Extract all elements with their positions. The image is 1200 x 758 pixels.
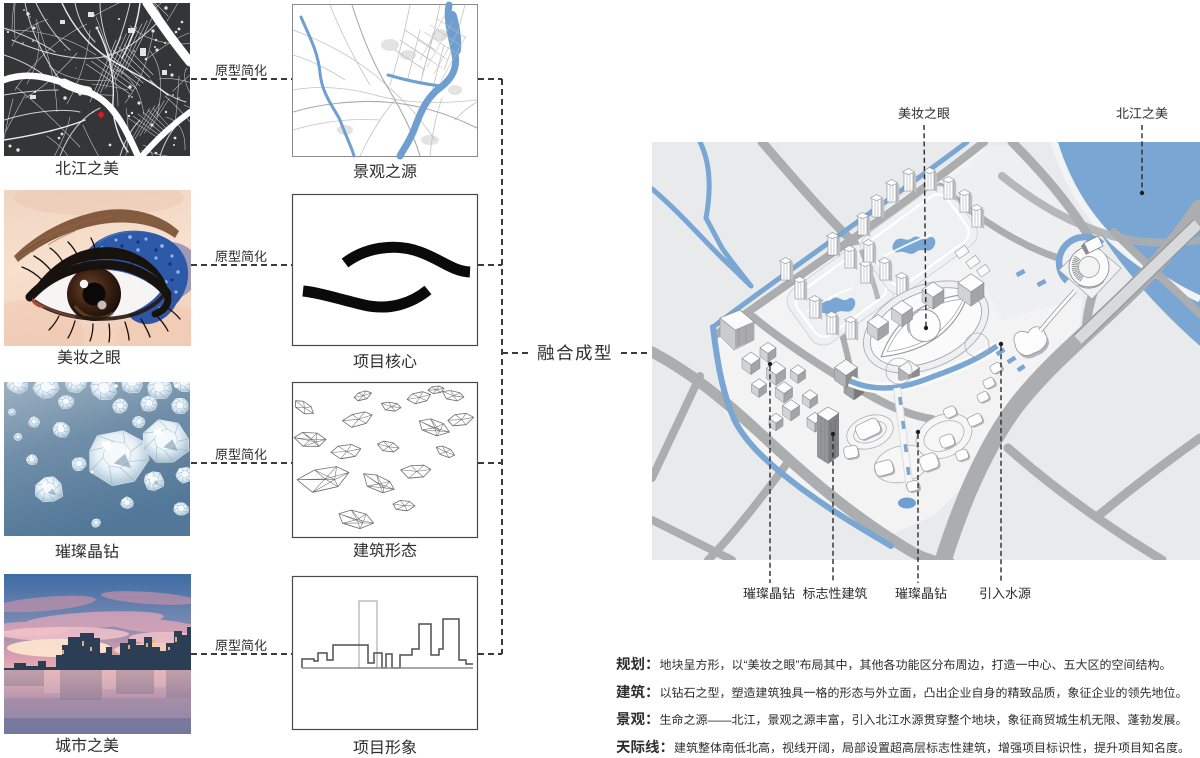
svg-text:北江之美: 北江之美 <box>55 160 119 178</box>
svg-text:引入水源: 引入水源 <box>979 586 1031 601</box>
svg-text:原型简化: 原型简化 <box>215 249 267 264</box>
svg-text:规划：地块呈方形，以“美妆之眼”布局其中，其他各功能区分布周: 规划：地块呈方形，以“美妆之眼”布局其中，其他各功能区分布周边，打造一中心、五大… <box>616 656 1172 673</box>
svg-text:原型简化: 原型简化 <box>215 638 267 653</box>
svg-text:城市之美: 城市之美 <box>55 737 119 755</box>
svg-text:璀璨晶钻: 璀璨晶钻 <box>895 586 947 601</box>
svg-text:美妆之眼: 美妆之眼 <box>57 349 121 367</box>
svg-text:项目核心: 项目核心 <box>353 353 417 371</box>
svg-text:美妆之眼: 美妆之眼 <box>898 106 950 121</box>
svg-text:项目形象: 项目形象 <box>353 739 417 757</box>
svg-text:建筑：以钻石之型，塑造建筑独具一格的形态与外立面，凸出企业自: 建筑：以钻石之型，塑造建筑独具一格的形态与外立面，凸出企业自身的精致品质，象征企… <box>616 684 1188 701</box>
svg-text:北江之美: 北江之美 <box>1116 106 1168 121</box>
svg-text:天际线：建筑整体南低北高，视线开阔，局部设置超高层标志性建筑: 天际线：建筑整体南低北高，视线开阔，局部设置超高层标志性建筑，增强项目标识性，提… <box>616 739 1190 756</box>
svg-text:璀璨晶钻: 璀璨晶钻 <box>743 586 795 601</box>
svg-text:建筑形态: 建筑形态 <box>353 542 417 560</box>
svg-text:标志性建筑: 标志性建筑 <box>802 586 867 601</box>
svg-text:景观之源: 景观之源 <box>353 163 417 181</box>
svg-text:原型简化: 原型简化 <box>215 447 267 462</box>
svg-text:原型简化: 原型简化 <box>215 63 267 78</box>
svg-text:璀璨晶钻: 璀璨晶钻 <box>55 543 119 561</box>
svg-text:景观：生命之源——北江，景观之源丰富，引入北江水源贯穿整个地: 景观：生命之源——北江，景观之源丰富，引入北江水源贯穿整个地块，象征商贸城生机无… <box>616 712 1188 728</box>
svg-text:融合成型: 融合成型 <box>537 343 613 363</box>
